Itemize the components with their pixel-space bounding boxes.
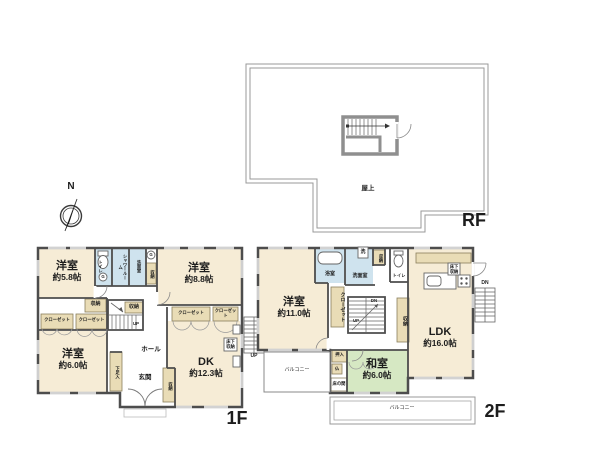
compass-north-label: N — [52, 181, 90, 193]
washroom-label: 洗面室 — [134, 254, 141, 278]
room-area: 約12.3帖 — [176, 369, 236, 379]
f2-exterior-stair — [475, 288, 495, 322]
kitchen-unit — [233, 325, 240, 334]
room-name: 洋室 — [43, 348, 103, 361]
gas-label: G — [99, 275, 107, 280]
f2-plan-drawing — [256, 246, 512, 432]
closet-label: クローゼット — [332, 289, 345, 325]
compass: N — [52, 181, 92, 237]
storage-label: 収納 — [376, 252, 383, 265]
north-compass-icon — [52, 192, 92, 236]
shower-room-label: シャワールーム — [114, 252, 127, 282]
room-name: DK — [176, 356, 236, 369]
room-name: 和室 — [347, 358, 407, 371]
room-area: 約5.8帖 — [42, 273, 92, 283]
underfloor-storage-label: 床下収納 — [225, 340, 236, 350]
oshiire-label: 押入 — [332, 353, 347, 358]
bath-label: 浴室 — [318, 272, 342, 278]
room-label-west110: 洋室 約11.0帖 — [264, 296, 324, 318]
stair-dn-label: DN — [366, 299, 382, 304]
butsuma-label: 仏 — [333, 367, 342, 372]
balcony-label: バルコニー — [268, 368, 326, 374]
f2-floor-label: 2F — [478, 401, 512, 422]
storage-label: 収納 — [148, 265, 155, 283]
room-area: 約16.0帖 — [410, 339, 470, 349]
rf-door-arc — [397, 124, 411, 138]
room-area: 約6.0帖 — [43, 361, 103, 371]
room-label-west60: 洋室 約6.0帖 — [43, 348, 103, 370]
toilet-label: トイレ — [390, 274, 408, 279]
room-fill-ldk — [408, 249, 472, 377]
toilet-tank-icon — [394, 251, 403, 255]
entrance-label: 玄関 — [132, 374, 158, 381]
room-label-dk: DK 約12.3帖 — [176, 356, 236, 378]
room-name: 洋室 — [42, 260, 92, 273]
rooftop-label: 屋上 — [352, 185, 384, 192]
storage-label: 収納 — [400, 308, 407, 334]
stair-up-label: UP — [129, 322, 143, 327]
room-name: LDK — [410, 326, 470, 339]
f2-plan: 洋室 約11.0帖 LDK 約16.0帖 和室 約6.0帖 浴室 洗 洗面室 収… — [256, 246, 512, 432]
hall-label: ホール — [136, 346, 166, 353]
room-name: 洋室 — [164, 262, 234, 275]
floor-plan-canvas: N 屋上 RF — [0, 0, 600, 450]
closet-label: クローゼット — [76, 318, 107, 323]
room-area: 約6.0帖 — [347, 371, 407, 381]
tokonoma-label: 床の間 — [331, 382, 347, 387]
f1-porch — [124, 409, 166, 417]
room-label-west88: 洋室 約8.8帖 — [164, 262, 234, 284]
storage-label: 収納 — [85, 302, 106, 308]
balcony-label: バルコニー — [372, 406, 432, 412]
room-area: 約11.0帖 — [264, 309, 324, 319]
closet-label: クローゼット — [41, 318, 73, 323]
underfloor-storage-label: 床下収納 — [449, 265, 460, 275]
storage-label: 収納 — [125, 305, 143, 311]
closet-label: クローゼット — [172, 311, 210, 316]
stair-up-label: UP — [348, 319, 364, 324]
laundry-label: 洗 — [358, 250, 368, 256]
room-label-ldk: LDK 約16.0帖 — [410, 326, 470, 348]
shoe-box-label: 下足入 — [113, 358, 120, 386]
room-label-west58: 洋室 約5.8帖 — [42, 260, 92, 282]
bathtub-icon — [318, 252, 342, 264]
f1-floor-label: 1F — [220, 408, 254, 429]
rf-floor-label: RF — [440, 210, 486, 231]
gas-label: G — [147, 253, 155, 258]
exterior-stair-dn-label: DN — [475, 281, 495, 287]
rf-plan: 屋上 RF — [244, 62, 492, 240]
washroom-label: 洗面室 — [348, 274, 372, 280]
storage-label: 収納 — [166, 374, 173, 398]
toilet-bowl-icon — [394, 255, 403, 267]
f1-plan: 洋室 約5.8帖 洋室 約8.8帖 洋室 約6.0帖 DK 約12.3帖 トイレ… — [36, 246, 268, 432]
stove-icon — [458, 275, 470, 287]
room-label-washitsu: 和室 約6.0帖 — [347, 358, 407, 380]
closet-label: クローゼット — [214, 309, 237, 319]
room-area: 約8.8帖 — [164, 275, 234, 285]
room-name: 洋室 — [264, 296, 324, 309]
kitchen-sink-icon — [427, 276, 441, 286]
